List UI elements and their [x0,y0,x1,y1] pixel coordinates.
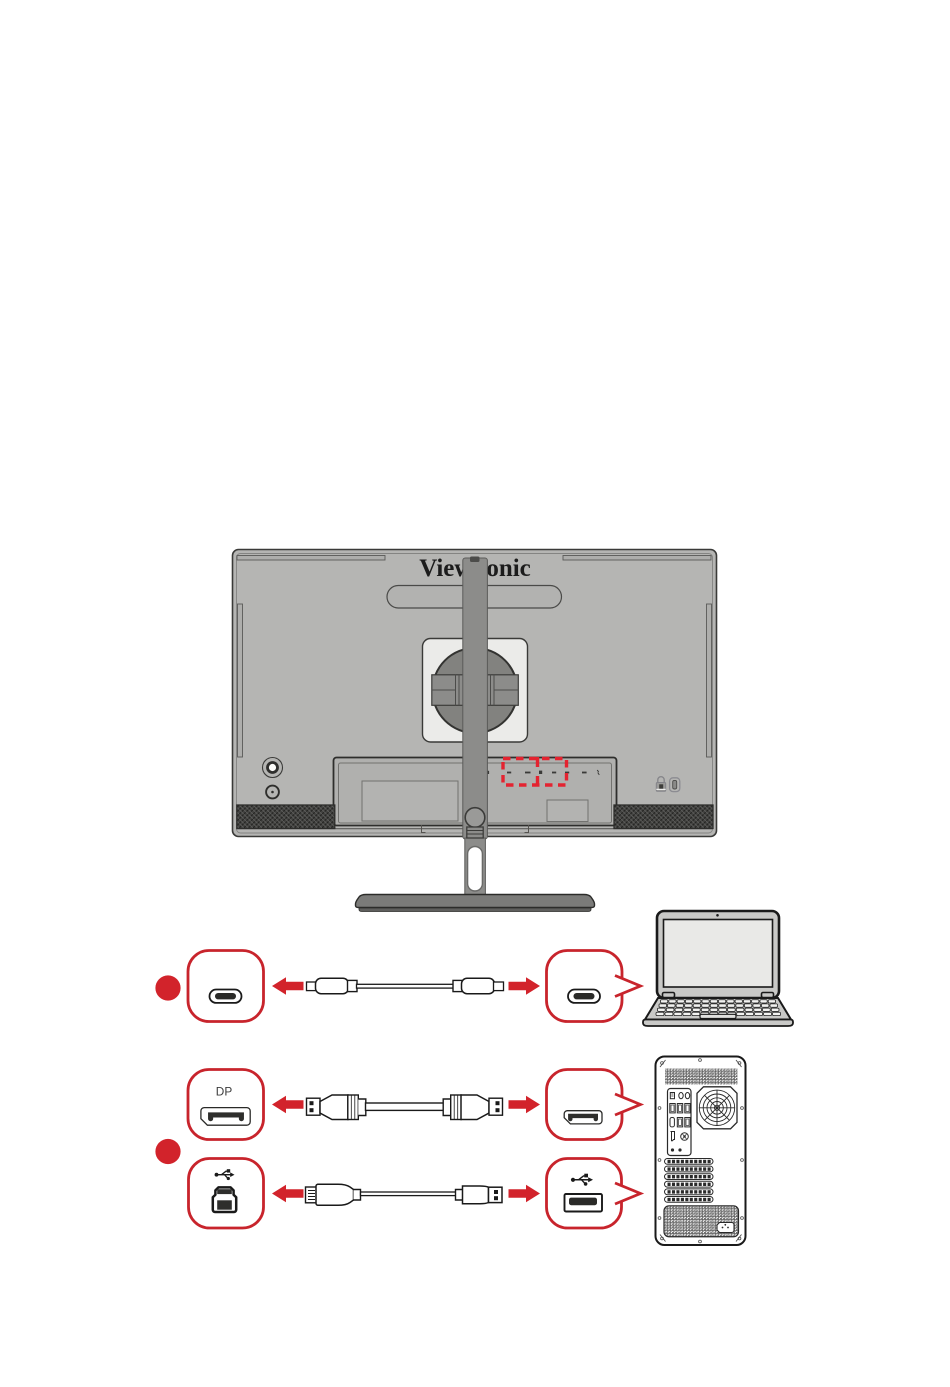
svg-text:DP: DP [216,1085,233,1099]
